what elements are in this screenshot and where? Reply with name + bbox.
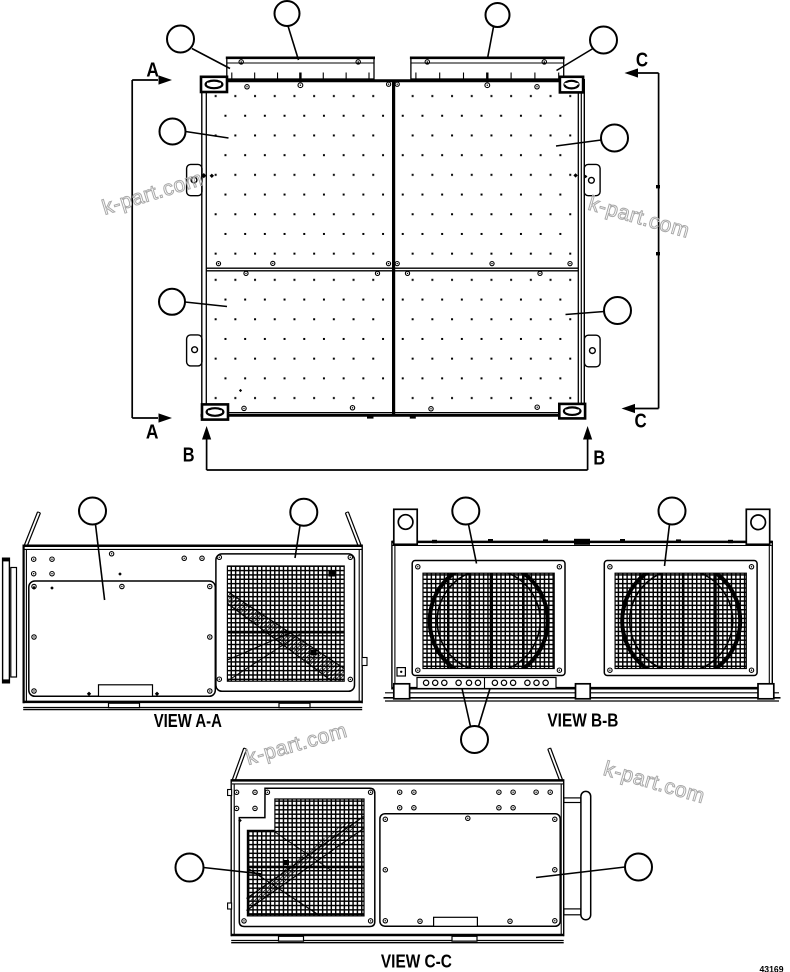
svg-text:VIEW A-A: VIEW A-A (154, 711, 222, 731)
svg-text:k-part.com: k-part.com (586, 192, 692, 243)
svg-text:k-part.com: k-part.com (601, 757, 707, 808)
svg-text:43169: 43169 (760, 964, 784, 972)
svg-text:B: B (183, 445, 195, 467)
svg-text:A: A (146, 59, 159, 81)
svg-text:C: C (635, 411, 647, 433)
svg-text:k-part.com: k-part.com (99, 167, 205, 219)
svg-text:k-part.com: k-part.com (243, 719, 349, 770)
svg-text:B: B (593, 448, 605, 470)
svg-text:A: A (146, 421, 159, 443)
svg-text:C: C (636, 50, 648, 72)
svg-text:VIEW C-C: VIEW C-C (381, 951, 452, 971)
svg-text:VIEW B-B: VIEW B-B (547, 711, 618, 731)
